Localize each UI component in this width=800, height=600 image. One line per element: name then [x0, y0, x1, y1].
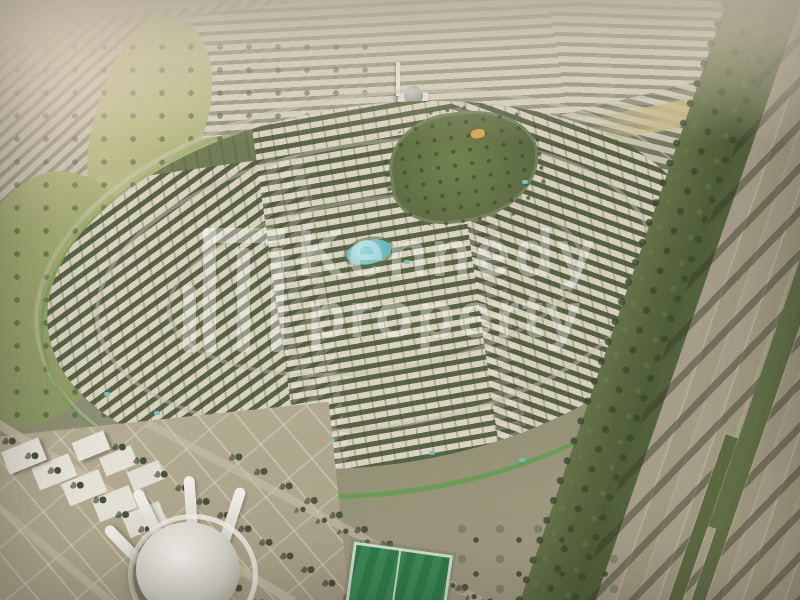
scrub-bushes-patch [452, 520, 622, 600]
watermark-text: Kennedy property [297, 222, 597, 345]
aerial-masterplan-photo: Kennedy property [0, 0, 800, 600]
kennedy-columns-logo-icon [183, 226, 287, 354]
watermark-brand-name: Kennedy [297, 222, 597, 285]
villa-pools-dots [104, 392, 110, 396]
watermark-brand-word: property [307, 285, 597, 346]
watermark: Kennedy property [183, 222, 643, 368]
